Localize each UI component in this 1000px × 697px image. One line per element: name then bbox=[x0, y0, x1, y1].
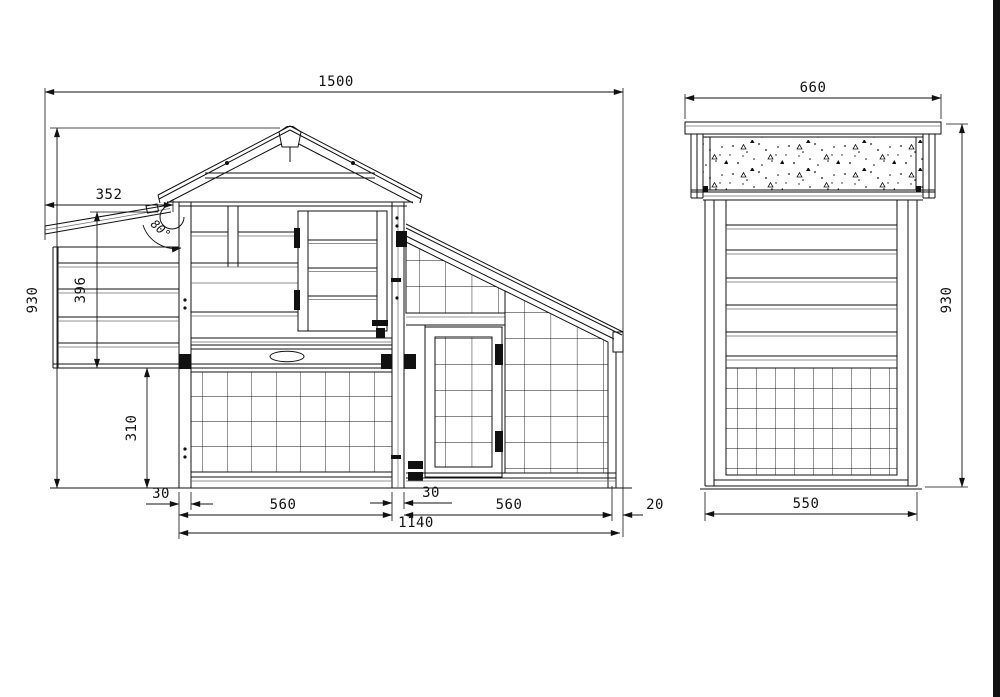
door-latch bbox=[376, 328, 385, 338]
dim-left-leg-width: 30 bbox=[152, 486, 170, 502]
droppings-tray bbox=[179, 345, 416, 369]
collar-tie bbox=[205, 173, 375, 178]
dim-overall-height-front: 930 bbox=[25, 287, 41, 314]
window-mullion bbox=[228, 206, 238, 267]
run-mesh-right bbox=[505, 291, 608, 473]
ridge-gusset-plate bbox=[279, 127, 301, 148]
dim-body-depth: 550 bbox=[793, 496, 820, 512]
dim-center-post-width: 30 bbox=[422, 485, 440, 501]
tray-handle bbox=[270, 351, 304, 361]
roof-felt-band bbox=[703, 137, 923, 190]
corner-bracket bbox=[179, 354, 191, 369]
door-head-rail bbox=[406, 313, 505, 325]
page-border bbox=[993, 0, 1000, 697]
dim-nest-box-height: 396 bbox=[73, 277, 89, 304]
dim-nest-lid-width: 352 bbox=[96, 187, 123, 203]
run-door bbox=[408, 327, 503, 481]
corner-bracket bbox=[404, 354, 416, 369]
door-hinge bbox=[294, 290, 300, 310]
side-mesh bbox=[726, 368, 897, 475]
dim-ground-clearance: 310 bbox=[124, 415, 140, 442]
dim-roof-depth: 660 bbox=[800, 80, 827, 96]
roof-mount-bracket bbox=[396, 231, 407, 247]
run-door-latch bbox=[408, 461, 423, 469]
blueprint-page: 80° bbox=[0, 0, 1000, 697]
front-gable-roof bbox=[158, 126, 422, 206]
dim-overall-height-side: 930 bbox=[939, 287, 955, 314]
dim-overall-width: 1500 bbox=[318, 74, 354, 90]
house-door bbox=[294, 211, 388, 338]
run-door-hinge bbox=[495, 431, 503, 452]
dim-left-bay-width: 560 bbox=[270, 497, 297, 513]
technical-drawing: 80° bbox=[0, 0, 1000, 697]
roof-screw bbox=[351, 161, 355, 165]
house-front-wall bbox=[191, 206, 392, 342]
run-right-post bbox=[608, 352, 616, 488]
side-wall bbox=[700, 200, 922, 489]
roof-screw bbox=[225, 161, 229, 165]
side-roof bbox=[685, 122, 941, 200]
door-latch bbox=[372, 320, 388, 326]
dim-right-bay-width: 560 bbox=[496, 497, 523, 513]
dim-base-width: 1140 bbox=[398, 515, 434, 531]
front-left-mesh bbox=[191, 372, 392, 481]
corner-bracket bbox=[381, 354, 392, 369]
wall-top-plate bbox=[167, 202, 413, 206]
nest-box: 80° bbox=[45, 204, 184, 368]
side-view: 660 930 550 bbox=[685, 80, 968, 521]
dim-lid-angle: 80° bbox=[148, 217, 173, 242]
front-view: 80° bbox=[25, 74, 664, 539]
dim-end-overhang: 20 bbox=[646, 497, 664, 513]
door-hinge bbox=[294, 228, 300, 248]
run-door-hinge bbox=[495, 344, 503, 365]
run-section bbox=[396, 224, 623, 488]
